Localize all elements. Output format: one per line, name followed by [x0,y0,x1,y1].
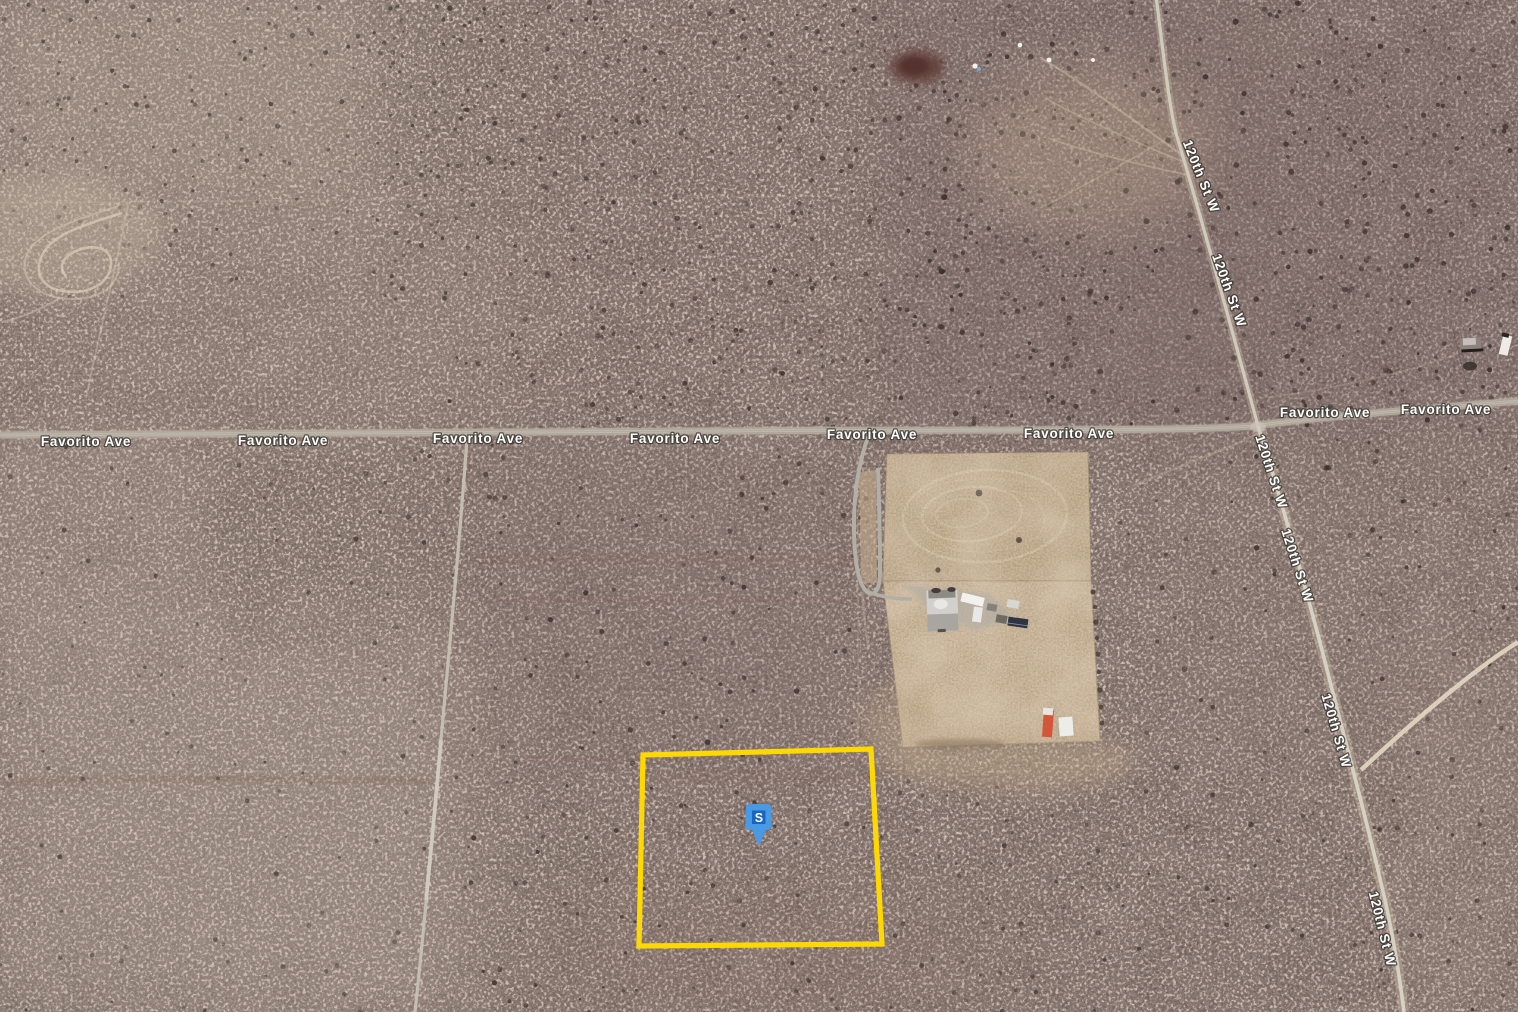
svg-text:Favorito Ave: Favorito Ave [1401,402,1491,417]
svg-text:Favorito Ave: Favorito Ave [238,433,328,448]
svg-text:Favorito Ave: Favorito Ave [827,427,917,442]
svg-text:S: S [755,811,763,825]
svg-text:Favorito Ave: Favorito Ave [1280,405,1370,420]
svg-text:Favorito Ave: Favorito Ave [433,431,523,446]
svg-text:Favorito Ave: Favorito Ave [1024,426,1114,441]
svg-text:Favorito Ave: Favorito Ave [630,431,720,446]
svg-text:Favorito Ave: Favorito Ave [41,434,131,449]
